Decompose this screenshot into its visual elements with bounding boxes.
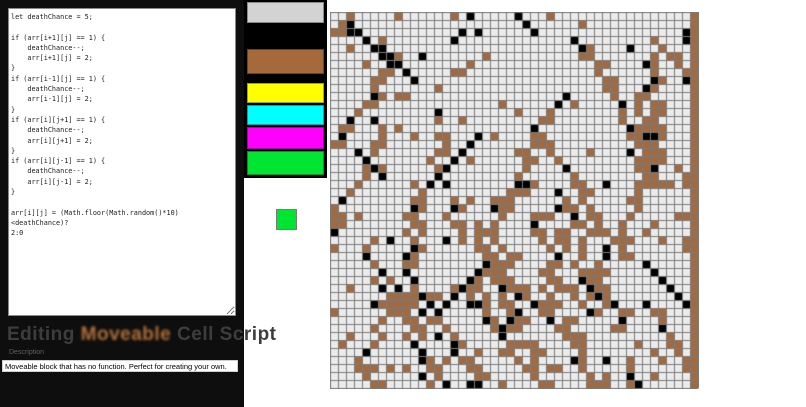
selected-color-swatch[interactable] xyxy=(276,209,297,230)
palette-swatch-brown[interactable] xyxy=(247,49,324,74)
description-label: Description xyxy=(9,349,44,356)
palette-swatch-magenta[interactable] xyxy=(247,127,324,149)
palette-swatch-cyan[interactable] xyxy=(247,105,324,125)
description-input[interactable] xyxy=(2,360,238,372)
palette-swatch-green[interactable] xyxy=(247,151,324,175)
cell-script-editor-app: let deathChance = 5; if (arr[i+1][j] == … xyxy=(0,0,806,407)
palette-swatch-yellow[interactable] xyxy=(247,83,324,103)
editing-heading: Editing Moveable Cell Script xyxy=(7,324,277,346)
cell-script-code-textarea[interactable]: let deathChance = 5; if (arr[i+1][j] == … xyxy=(8,8,236,316)
color-palette xyxy=(244,0,327,178)
editing-heading-cell-name: Moveable xyxy=(81,324,172,345)
palette-swatch-black[interactable] xyxy=(247,25,324,47)
palette-swatch-lightgray[interactable] xyxy=(247,2,324,23)
cell-grid-canvas[interactable] xyxy=(330,12,699,389)
editing-heading-suffix: Cell Script xyxy=(171,324,276,345)
editing-heading-prefix: Editing xyxy=(7,324,81,345)
cell-grid[interactable] xyxy=(330,12,699,389)
script-editor-panel: let deathChance = 5; if (arr[i+1][j] == … xyxy=(0,0,244,407)
